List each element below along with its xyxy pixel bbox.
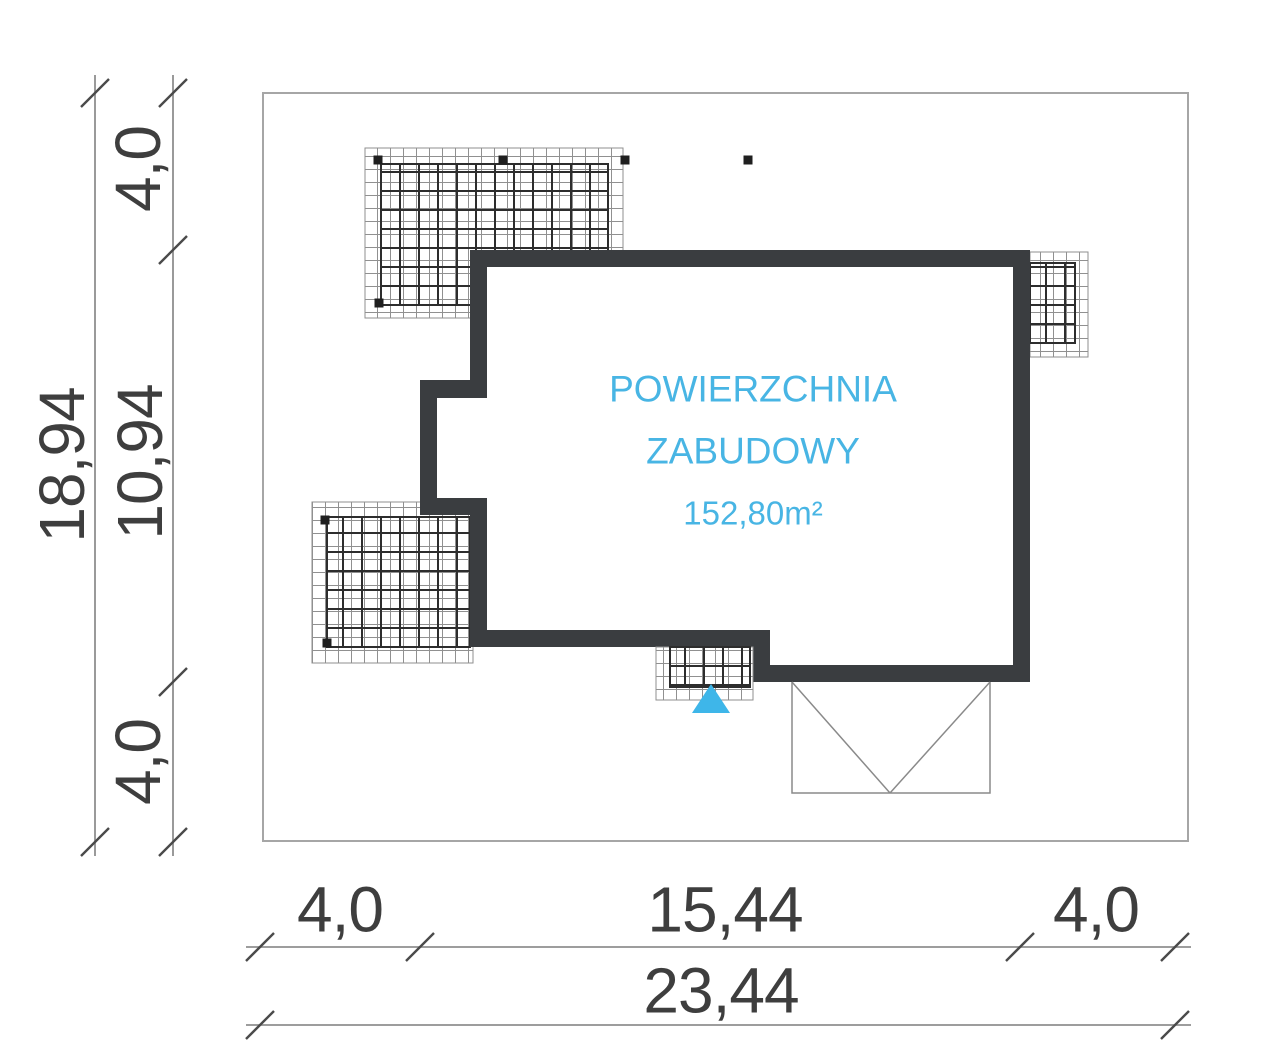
dim-label-bottom-right-margin: 4,0 <box>1053 878 1139 942</box>
site-plan-drawing: 4,0 18,94 10,94 4,0 4,0 15,44 4,0 23,44 … <box>0 0 1280 1051</box>
dim-label-bottom-total: 23,44 <box>643 959 798 1023</box>
entrance-porch-hatch <box>656 647 753 700</box>
building-area-value: 152,80m² <box>683 497 822 530</box>
building-area-label-line1: POWIERZCHNIA <box>609 371 897 408</box>
building-area-label-line2: ZABUDOWY <box>646 433 860 470</box>
dim-label-left-top-margin: 4,0 <box>106 126 170 212</box>
dim-label-left-bottom-margin: 4,0 <box>106 719 170 805</box>
terrace-hatch-bottom-left <box>312 502 473 663</box>
dim-label-bottom-building: 15,44 <box>647 878 802 942</box>
dim-label-left-total: 18,94 <box>30 387 94 542</box>
terrace-hatch-top-right <box>1030 252 1088 357</box>
dim-label-left-building: 10,94 <box>108 384 172 539</box>
dim-label-bottom-left-margin: 4,0 <box>297 878 383 942</box>
